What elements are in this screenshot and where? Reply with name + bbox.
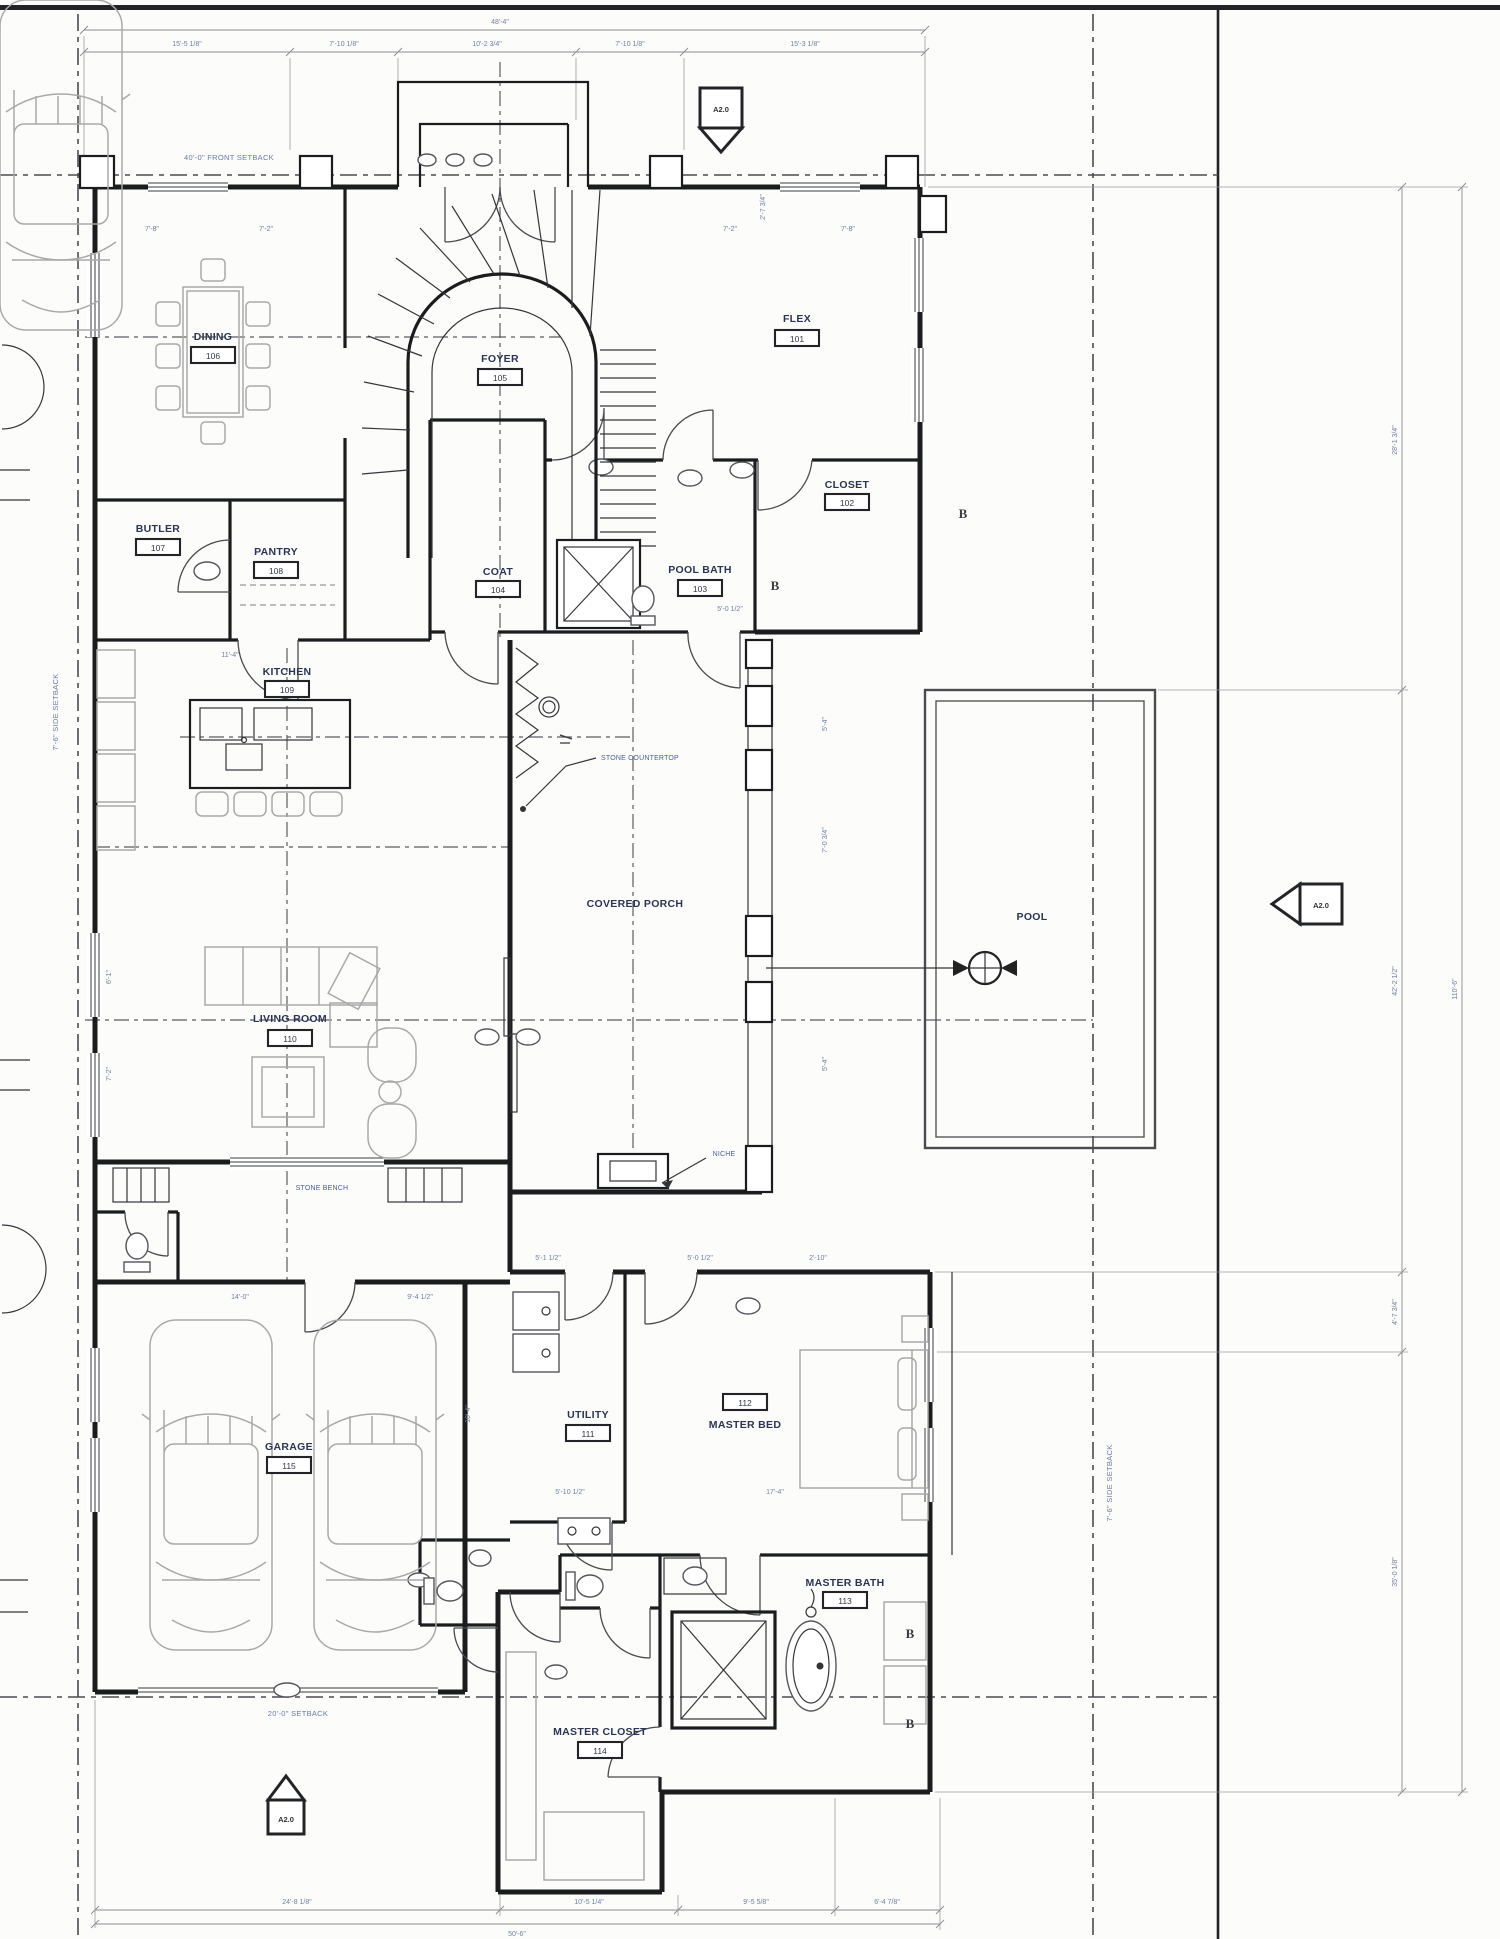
room-label-coat: COAT — [483, 566, 513, 578]
porch-pier — [746, 750, 772, 790]
dim-small: 7'-8" — [841, 226, 855, 233]
dim-small: 5'-1 1/2" — [535, 1255, 561, 1262]
porch-niche — [598, 1154, 668, 1188]
bottom-dim-lines — [95, 1910, 940, 1924]
porch-column — [300, 156, 332, 188]
dim-bottom-seg: 24'-8 1/8" — [282, 1899, 312, 1906]
room-label-garage: GARAGE — [265, 1441, 313, 1453]
window — [87, 1438, 103, 1512]
pool-bath-sink — [678, 470, 702, 486]
dim-right-seg: 42'-2 1/2" — [1392, 966, 1399, 996]
rear-setback-label: 20'-0" SETBACK — [268, 1709, 328, 1718]
room-label-master-bath: MASTER BATH — [806, 1577, 885, 1589]
stair-treads-fan — [362, 190, 600, 474]
section-marker-b: B — [906, 1626, 915, 1641]
front-stoop — [398, 82, 588, 187]
closet-shelving — [506, 1652, 536, 1860]
room-number-closet: 102 — [840, 498, 854, 508]
pool-label: POOL — [1017, 911, 1048, 923]
porch-column — [650, 156, 682, 188]
dim-small: 5'-10 1/2" — [555, 1489, 585, 1496]
room-label-utility: UTILITY — [567, 1409, 609, 1421]
annotation-leaders — [520, 758, 706, 1189]
pool-bath-toilet — [631, 586, 655, 625]
section-marker-b: B — [959, 506, 968, 521]
doors — [125, 154, 812, 1777]
door-hardware-ovals — [408, 154, 760, 1679]
dim-right-overall: 110'-6" — [1452, 978, 1459, 1000]
dim-small: 2'-7 3/4" — [760, 194, 767, 220]
stone-bench-annotation: STONE BENCH — [296, 1185, 349, 1192]
closet-door — [758, 460, 812, 510]
floor-plan-svg: DINING 106 FOYER 105 FLEX 101 CLOSET 102… — [0, 0, 1500, 1939]
dim-small: 6'-1" — [106, 970, 113, 984]
dim-small: 2'-10" — [809, 1255, 827, 1262]
room-number-pool-bath: 103 — [693, 584, 707, 594]
dim-small: 11'-4" — [221, 652, 239, 659]
site-lines — [0, 5, 1500, 1939]
dim-bottom-seg: 10'-5 1/4" — [574, 1899, 604, 1906]
room-number-coat: 104 — [491, 585, 505, 595]
centerlines — [85, 62, 1093, 1282]
window — [911, 348, 927, 422]
room-dining: DINING 106 — [191, 331, 235, 363]
room-closet: CLOSET 102 — [825, 479, 870, 510]
room-number-master-closet: 114 — [593, 1746, 607, 1756]
coat-door — [445, 632, 498, 684]
garage-entry-door — [305, 1282, 355, 1332]
kitchen-island — [190, 700, 350, 816]
living-ottoman-inner — [262, 1067, 314, 1117]
pool — [766, 690, 1155, 1148]
stone-countertop-annotation: STONE COUNTERTOP — [601, 755, 679, 762]
room-garage: GARAGE 115 — [265, 1441, 313, 1473]
toilet-room-door — [600, 1608, 650, 1658]
room-number-utility: 111 — [582, 1429, 595, 1439]
svg-text:A2.0: A2.0 — [713, 105, 729, 114]
room-master-bed: 112 MASTER BED — [709, 1394, 782, 1431]
dim-small: 17'-4" — [766, 1489, 784, 1496]
window — [87, 933, 103, 1017]
room-number-pantry: 108 — [269, 566, 283, 576]
room-living: LIVING ROOM 110 — [253, 1013, 327, 1046]
left-setback-label: 7'-6" SIDE SETBACK — [51, 673, 60, 750]
setback-labels: 40'-0" FRONT SETBACK 7'-6" SIDE SETBACK … — [51, 153, 1114, 1718]
room-number-master-bath: 113 — [838, 1596, 852, 1606]
dim-top-seg: 15'-5 1/8" — [172, 41, 202, 48]
butler-sink — [194, 562, 220, 580]
dim-small: 9'-4 1/2" — [407, 1294, 433, 1301]
porch-pier — [746, 1146, 772, 1192]
room-number-butler: 107 — [151, 543, 165, 553]
room-number-living: 110 — [283, 1034, 297, 1044]
dim-right-seg: 35'-0 1/8" — [1392, 1557, 1399, 1587]
room-label-master-closet: MASTER CLOSET — [553, 1726, 647, 1738]
window — [780, 179, 860, 195]
covered-porch-label: COVERED PORCH — [587, 898, 684, 910]
room-number-dining: 106 — [206, 351, 220, 361]
pool-target-marker — [766, 952, 1017, 984]
mud-powder-toilet — [124, 1233, 150, 1272]
dim-small: 7'-0 3/4" — [822, 827, 829, 853]
window — [87, 1053, 103, 1137]
elevation-marker-bottom: A2.0 — [268, 1776, 304, 1834]
flex-chimney-bump — [920, 196, 946, 232]
dim-small: 10'-4" — [465, 1405, 472, 1423]
room-master-closet: MASTER CLOSET 114 — [553, 1726, 647, 1758]
room-label-living: LIVING ROOM — [253, 1013, 327, 1025]
room-master-bath: MASTER BATH 113 — [806, 1577, 885, 1608]
closet-entry-door — [510, 1592, 560, 1642]
right-setback-label: 7'-6" SIDE SETBACK — [1105, 1444, 1114, 1521]
niche-annotation: NICHE — [713, 1151, 736, 1158]
powder-fixtures — [424, 1550, 491, 1604]
utility-door — [565, 1272, 613, 1320]
window — [911, 238, 927, 312]
dimension-text: 48'-4" 15'-5 1/8" 7'-10 1/8" 10'-2 3/4" … — [106, 19, 1459, 1938]
room-label-dining: DINING — [194, 331, 233, 343]
room-kitchen: KITCHEN 109 — [263, 666, 312, 697]
window — [87, 1348, 103, 1422]
dim-top-seg: 7'-10 1/8" — [329, 41, 359, 48]
room-butler: BUTLER 107 — [136, 523, 180, 555]
left-edge-stubs — [0, 470, 30, 1612]
section-marker-b: B — [771, 578, 780, 593]
room-label-foyer: FOYER — [481, 353, 519, 365]
dim-small: 7'-2" — [259, 226, 273, 233]
room-label-pantry: PANTRY — [254, 546, 298, 558]
dim-bottom-seg: 9'-5 5/8" — [743, 1899, 769, 1906]
floor-plan-sheet: DINING 106 FOYER 105 FLEX 101 CLOSET 102… — [0, 0, 1500, 1939]
room-pool-bath: POOL BATH 103 — [668, 564, 732, 596]
dim-small: 5'-4" — [822, 717, 829, 731]
master-bed-furniture — [800, 1316, 928, 1520]
porch-pier — [746, 686, 772, 726]
svg-text:A2.0: A2.0 — [278, 1815, 294, 1824]
room-label-butler: BUTLER — [136, 523, 180, 535]
dim-small: 5'-0 1/2" — [717, 606, 743, 613]
room-coat: COAT 104 — [476, 566, 520, 597]
porch-column — [80, 156, 114, 188]
room-flex: FLEX 101 — [775, 313, 819, 346]
outdoor-kitchen — [516, 648, 572, 778]
dim-bottom-overall: 50'-6" — [508, 1931, 526, 1938]
room-number-kitchen: 109 — [280, 685, 294, 695]
pantry-shelves — [240, 585, 335, 605]
room-label-kitchen: KITCHEN — [263, 666, 312, 678]
dim-right-seg: 4'-7 3/4" — [1392, 1299, 1399, 1325]
porch-pier — [746, 640, 772, 668]
kitchen-cabinets — [97, 650, 135, 850]
room-label-master-bed: MASTER BED — [709, 1419, 782, 1431]
living-chair — [368, 1104, 416, 1158]
dim-small: 14'-0" — [231, 1294, 249, 1301]
stair-arch-inner — [432, 308, 572, 558]
room-pantry: PANTRY 108 — [254, 546, 298, 578]
section-marker-b: B — [906, 1716, 915, 1731]
garage-door-symbol — [274, 1683, 300, 1697]
stair-treads-run — [600, 350, 656, 546]
svg-text:A2.0: A2.0 — [1313, 901, 1329, 910]
dim-right-seg: 28'-1 3/4" — [1392, 425, 1399, 455]
window — [148, 179, 228, 195]
front-setback-label: 40'-0" FRONT SETBACK — [184, 153, 274, 162]
master-hall-door — [645, 1272, 697, 1324]
room-number-master-bed: 112 — [738, 1398, 752, 1408]
porch-pier — [746, 916, 772, 956]
flex-door — [663, 410, 713, 460]
room-label-closet: CLOSET — [825, 479, 870, 491]
window — [921, 1428, 937, 1502]
window — [87, 253, 103, 337]
porch-bath-door — [688, 632, 740, 688]
dim-small: 5'-4" — [822, 1057, 829, 1071]
room-label-pool-bath: POOL BATH — [668, 564, 732, 576]
dim-small: 7'-8" — [145, 226, 159, 233]
dim-top-seg: 7'-10 1/8" — [615, 41, 645, 48]
room-number-garage: 115 — [282, 1461, 296, 1471]
markers: A2.0 A2.0 A2.0 B B B B — [268, 88, 1342, 1834]
stair-arch-wall — [408, 274, 596, 558]
room-number-flex: 101 — [790, 334, 804, 344]
dim-small: 5'-0 1/2" — [687, 1255, 713, 1262]
dim-small: 7'-2" — [723, 226, 737, 233]
window — [230, 1155, 384, 1171]
dim-bottom-seg: 6'-4 7/8" — [874, 1899, 900, 1906]
window — [921, 1328, 937, 1402]
elevation-marker-top: A2.0 — [700, 88, 742, 152]
dim-top-seg: 10'-2 3/4" — [472, 41, 502, 48]
living-chair — [368, 1028, 416, 1082]
room-foyer: FOYER 105 — [478, 353, 522, 385]
dim-small: 7'-2" — [106, 1067, 113, 1081]
pool-bath-shower — [557, 540, 640, 628]
dim-top-overall: 48'-4" — [491, 19, 509, 26]
fixtures — [124, 470, 926, 1728]
master-bath-door — [700, 1555, 760, 1615]
room-utility: UTILITY 111 — [566, 1409, 610, 1441]
porch-column — [886, 156, 918, 188]
room-label-flex: FLEX — [783, 313, 811, 325]
closet-shelving — [544, 1812, 644, 1880]
dim-top-seg: 15'-3 1/8" — [790, 41, 820, 48]
elevation-marker-right: A2.0 — [1272, 884, 1342, 924]
left-edge-arcs — [2, 345, 46, 1313]
room-number-foyer: 105 — [493, 373, 507, 383]
porch-pier — [746, 982, 772, 1022]
top-property-line — [0, 5, 1500, 10]
powder-door — [454, 1628, 498, 1672]
living-side-table — [379, 1081, 401, 1103]
